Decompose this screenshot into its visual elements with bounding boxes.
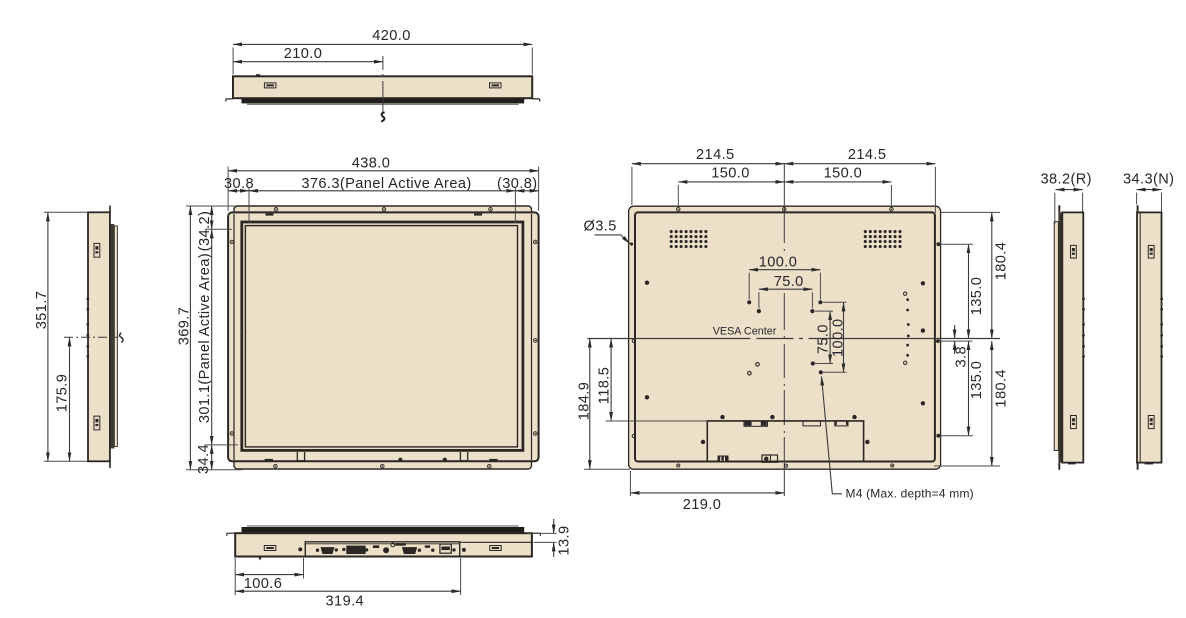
svg-text:214.5: 214.5 xyxy=(696,147,735,163)
svg-text:VESA Center: VESA Center xyxy=(713,326,777,338)
svg-text:100.6: 100.6 xyxy=(244,576,283,592)
svg-text:180.4: 180.4 xyxy=(993,242,1009,281)
svg-text:3.8: 3.8 xyxy=(954,346,970,368)
svg-text:180.4: 180.4 xyxy=(993,369,1009,408)
svg-text:38.2(R): 38.2(R) xyxy=(1040,171,1091,187)
svg-text:420.0: 420.0 xyxy=(372,28,411,44)
svg-text:34.4: 34.4 xyxy=(196,444,212,474)
svg-text:219.0: 219.0 xyxy=(683,497,722,513)
svg-text:(34.2): (34.2) xyxy=(197,211,213,252)
svg-text:Ø3.5: Ø3.5 xyxy=(584,219,617,235)
svg-text:34.3(N): 34.3(N) xyxy=(1123,171,1174,187)
svg-text:150.0: 150.0 xyxy=(711,165,750,181)
svg-text:(30.8): (30.8) xyxy=(497,176,538,192)
svg-text:118.5: 118.5 xyxy=(597,367,613,404)
svg-text:438.0: 438.0 xyxy=(352,155,391,171)
svg-text:214.5: 214.5 xyxy=(848,147,887,163)
svg-text:376.3(Panel Active Area): 376.3(Panel Active Area) xyxy=(301,176,471,192)
svg-text:135.0: 135.0 xyxy=(969,361,985,400)
svg-text:75.0: 75.0 xyxy=(774,274,804,290)
svg-text:30.8: 30.8 xyxy=(224,176,254,192)
svg-text:210.0: 210.0 xyxy=(284,46,323,62)
svg-text:319.4: 319.4 xyxy=(326,593,365,609)
svg-text:13.9: 13.9 xyxy=(557,525,573,555)
svg-text:M4 (Max. depth=4 mm): M4 (Max. depth=4 mm) xyxy=(846,486,974,500)
svg-text:75.0: 75.0 xyxy=(815,324,831,354)
svg-text:100.0: 100.0 xyxy=(759,254,798,270)
svg-text:150.0: 150.0 xyxy=(824,165,863,181)
svg-text:301.1(Panel Active Area): 301.1(Panel Active Area) xyxy=(197,253,213,423)
svg-text:175.9: 175.9 xyxy=(55,374,71,413)
svg-text:135.0: 135.0 xyxy=(969,277,985,316)
